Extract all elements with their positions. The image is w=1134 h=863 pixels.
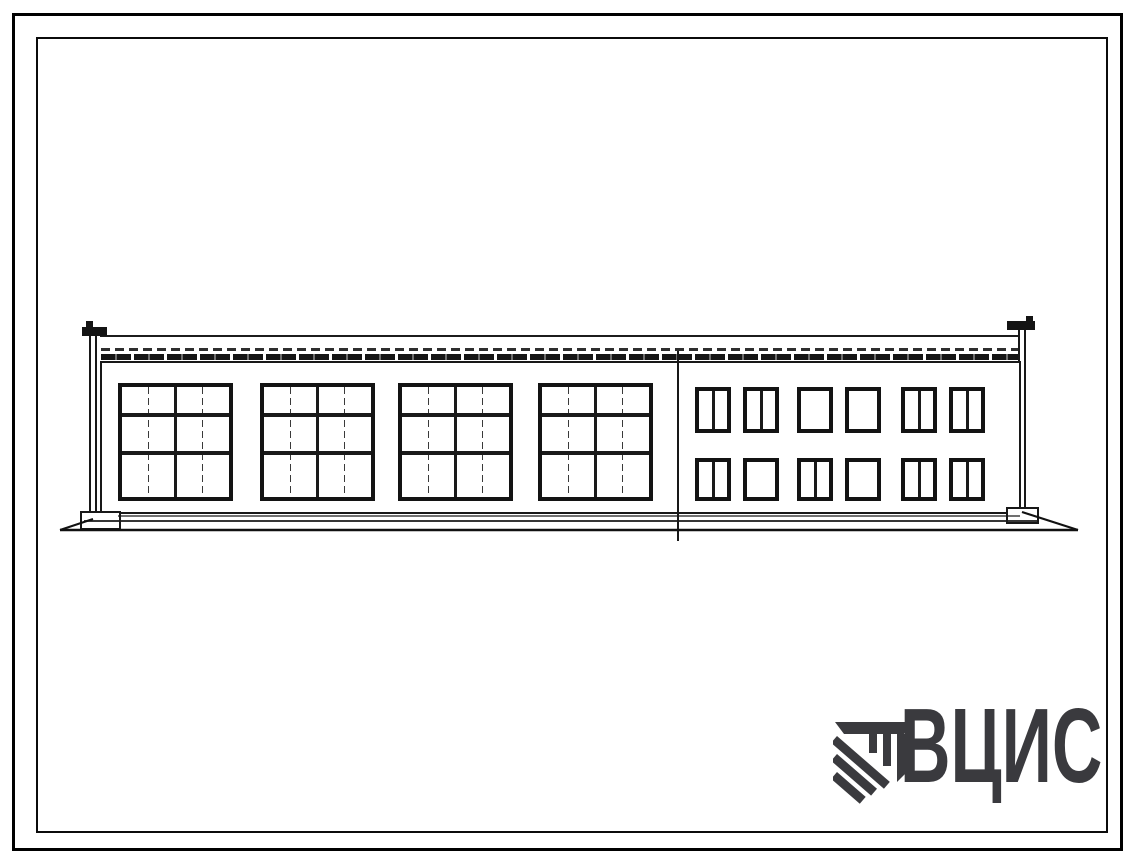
window-center-mullion: [966, 462, 969, 497]
window-transom-bar: [402, 413, 509, 417]
downpipe-foot-right: [1006, 507, 1039, 524]
roof-edge-line: [100, 335, 1021, 337]
window-center-mullion: [712, 391, 715, 429]
small-window: [901, 458, 937, 501]
small-window: [695, 387, 731, 433]
parapet-cap-left-nub: [86, 321, 93, 328]
window-thin-mullion: [202, 387, 203, 497]
window-transom-bar: [402, 451, 509, 455]
downpipe-foot-left: [80, 511, 121, 530]
expansion-joint-line: [677, 351, 679, 541]
large-window: [118, 383, 233, 501]
small-window: [797, 387, 833, 433]
small-window: [743, 458, 779, 501]
window-thin-mullion: [568, 387, 569, 497]
window-thin-mullion: [148, 387, 149, 497]
window-transom-bar: [542, 413, 649, 417]
window-thin-mullion: [344, 387, 345, 497]
large-window: [538, 383, 653, 501]
large-window: [260, 383, 375, 501]
window-center-mullion: [454, 387, 457, 497]
small-window: [695, 458, 731, 501]
small-window: [949, 458, 985, 501]
large-window: [398, 383, 513, 501]
window-transom-bar: [542, 451, 649, 455]
small-window: [949, 387, 985, 433]
parapet-cap-left: [82, 327, 107, 336]
window-center-mullion: [918, 462, 921, 497]
fascia-hatch-bottom: [101, 354, 1020, 360]
small-window: [743, 387, 779, 433]
parapet-cap-right-nub: [1026, 316, 1033, 322]
fascia-hatch-top: [101, 348, 1020, 351]
logo-text: ВЦИС: [900, 693, 1111, 799]
window-center-mullion: [966, 391, 969, 429]
window-center-mullion: [594, 387, 597, 497]
small-window: [797, 458, 833, 501]
window-center-mullion: [918, 391, 921, 429]
window-center-mullion: [760, 391, 763, 429]
window-center-mullion: [316, 387, 319, 497]
window-thin-mullion: [482, 387, 483, 497]
small-window: [845, 458, 881, 501]
parapet-cap-right: [1007, 321, 1035, 330]
downpipe-left: [89, 336, 97, 513]
window-transom-bar: [264, 451, 371, 455]
window-transom-bar: [122, 413, 229, 417]
window-thin-mullion: [428, 387, 429, 497]
small-window: [901, 387, 937, 433]
window-center-mullion: [712, 462, 715, 497]
window-center-mullion: [174, 387, 177, 497]
small-window: [845, 387, 881, 433]
institute-logo: ВЦИС: [830, 700, 1090, 815]
window-center-mullion: [814, 462, 817, 497]
window-thin-mullion: [622, 387, 623, 497]
window-transom-bar: [264, 413, 371, 417]
window-transom-bar: [122, 451, 229, 455]
window-thin-mullion: [290, 387, 291, 497]
